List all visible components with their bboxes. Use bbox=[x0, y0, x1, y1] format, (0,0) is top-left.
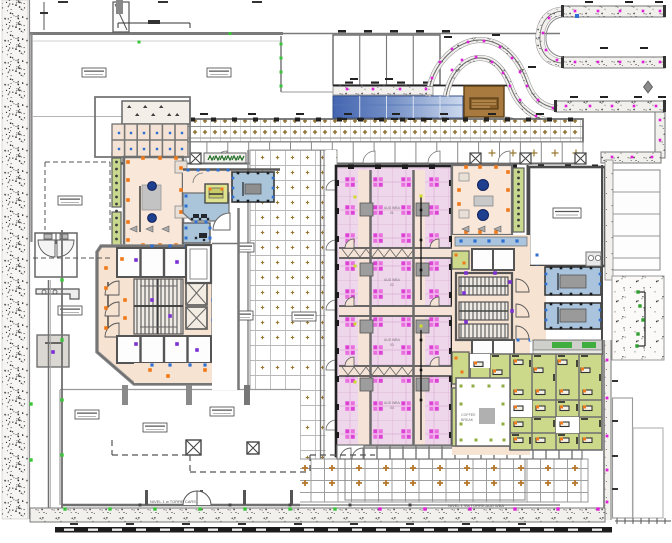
svg-text:AUD WBA: AUD WBA bbox=[384, 401, 401, 405]
svg-text:AUD WBA: AUD WBA bbox=[384, 206, 401, 210]
svg-text:NIVEL 1 w TORRE CARS: NIVEL 1 w TORRE CARS bbox=[150, 499, 196, 504]
svg-text:NIVEL 1 Via TORRE AUD WBA: NIVEL 1 Via TORRE AUD WBA bbox=[448, 503, 504, 508]
svg-text:COFFEE: COFFEE bbox=[461, 413, 476, 417]
svg-text:04: 04 bbox=[390, 406, 394, 410]
svg-text:02: 02 bbox=[390, 283, 394, 287]
svg-text:AUD WBA: AUD WBA bbox=[384, 278, 401, 282]
svg-text:AUD WBA: AUD WBA bbox=[384, 338, 401, 342]
svg-text:BREAK: BREAK bbox=[461, 418, 474, 422]
svg-text:03: 03 bbox=[390, 343, 394, 347]
svg-text:01: 01 bbox=[390, 211, 394, 215]
